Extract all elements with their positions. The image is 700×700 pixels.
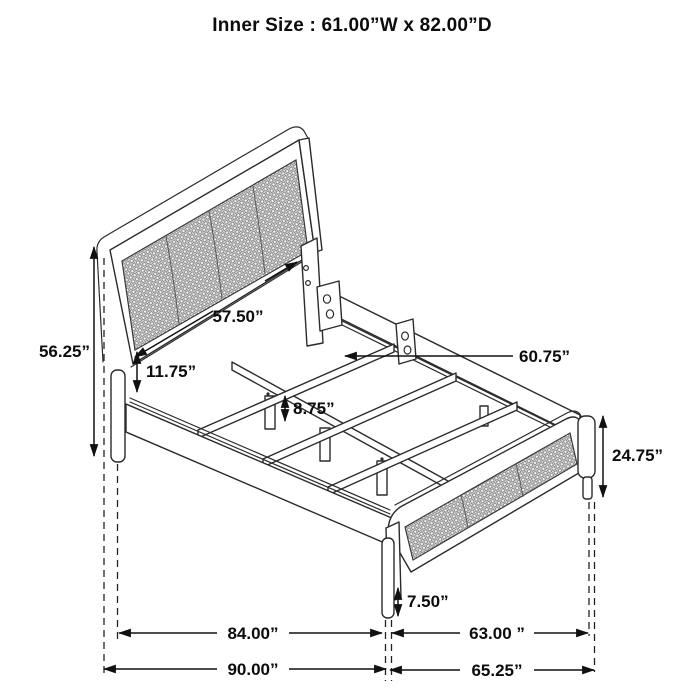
dim-leg-height-label: 8.75” bbox=[293, 399, 335, 418]
dim-footboard-inner-width-label: 63.00 ” bbox=[469, 624, 525, 643]
dim-headboard-height-label: 56.25” bbox=[39, 342, 90, 361]
dim-overall-length-label: 90.00” bbox=[227, 660, 278, 679]
headboard-left-leg bbox=[111, 370, 125, 462]
slat bbox=[263, 373, 456, 467]
diagram-canvas: 56.25” 57.50” 11.75” 8.75” 60.75” 24.75”… bbox=[0, 0, 700, 700]
screw-dot bbox=[380, 457, 383, 460]
footboard-right-leg bbox=[583, 477, 592, 499]
dim-footboard-overall-width-label: 65.25” bbox=[471, 661, 522, 680]
slat bbox=[198, 344, 394, 438]
dim-headboard-width-label: 57.50” bbox=[212, 307, 263, 326]
footboard-right-post bbox=[578, 416, 595, 478]
screw-dot bbox=[266, 392, 269, 395]
footboard bbox=[382, 411, 595, 618]
headboard-bracket bbox=[317, 281, 342, 331]
rail-bracket bbox=[396, 319, 416, 364]
dim-panel-gap-label: 11.75” bbox=[146, 362, 196, 381]
dim-inner-length-label: 84.00” bbox=[227, 624, 278, 643]
dim-footboard-height-label: 24.75” bbox=[612, 446, 663, 465]
diagram-title: Inner Size : 61.00”W x 82.00”D bbox=[212, 15, 492, 36]
footboard-left-leg bbox=[382, 538, 394, 618]
dim-slat-length-label: 60.75” bbox=[519, 347, 570, 366]
dim-clearance-label: 7.50” bbox=[407, 592, 449, 611]
bed-dimension-diagram: 56.25” 57.50” 11.75” 8.75” 60.75” 24.75”… bbox=[0, 0, 700, 700]
